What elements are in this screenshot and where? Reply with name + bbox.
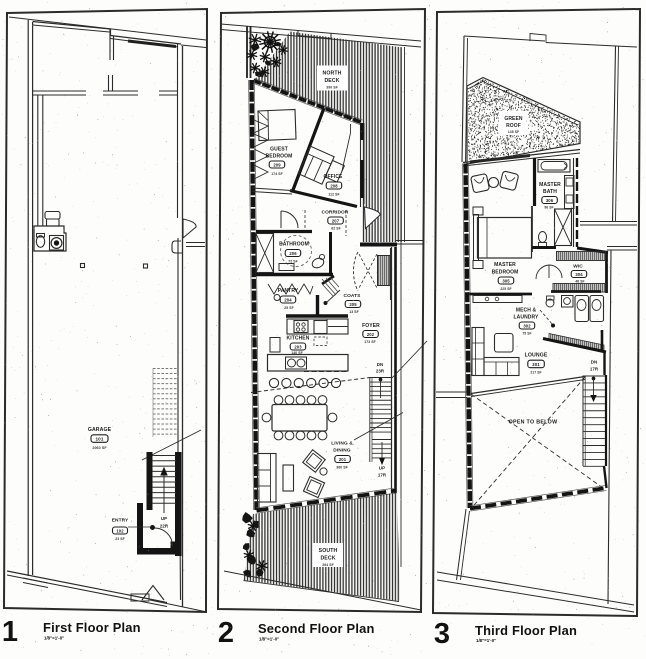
svg-text:BATHROOM: BATHROOM bbox=[279, 242, 309, 248]
svg-text:17R: 17R bbox=[590, 367, 599, 372]
svg-text:LIVING &: LIVING & bbox=[331, 441, 353, 447]
svg-text:GUEST: GUEST bbox=[270, 147, 288, 153]
svg-text:204: 204 bbox=[284, 297, 292, 302]
svg-text:174 SF: 174 SF bbox=[271, 172, 283, 176]
svg-text:207: 207 bbox=[332, 218, 340, 223]
svg-text:101: 101 bbox=[96, 436, 104, 441]
svg-text:23R: 23R bbox=[376, 369, 385, 374]
svg-text:217 SF: 217 SF bbox=[530, 371, 541, 375]
svg-text:Third Floor Plan: Third Floor Plan bbox=[475, 623, 577, 638]
svg-text:OFFICE: OFFICE bbox=[324, 174, 343, 180]
svg-text:First Floor Plan: First Floor Plan bbox=[43, 620, 141, 635]
svg-text:48 SF: 48 SF bbox=[575, 280, 584, 284]
svg-text:SOUTH: SOUTH bbox=[319, 548, 338, 554]
svg-text:306: 306 bbox=[546, 198, 554, 203]
svg-text:72 SF: 72 SF bbox=[288, 260, 298, 264]
svg-text:ENTRY: ENTRY bbox=[112, 518, 129, 524]
svg-text:BEDROOM: BEDROOM bbox=[492, 270, 519, 276]
svg-text:GREEN: GREEN bbox=[504, 116, 523, 122]
svg-text:305: 305 bbox=[502, 278, 510, 283]
svg-text:75 SF: 75 SF bbox=[522, 332, 531, 336]
svg-text:225 SF: 225 SF bbox=[500, 287, 511, 291]
svg-text:UP: UP bbox=[379, 466, 385, 471]
svg-text:23 SF: 23 SF bbox=[115, 537, 125, 541]
svg-text:MASTER: MASTER bbox=[494, 262, 516, 268]
svg-text:KITCHEN: KITCHEN bbox=[287, 336, 310, 342]
svg-text:WIC: WIC bbox=[573, 264, 583, 270]
svg-text:NORTH: NORTH bbox=[323, 71, 342, 77]
svg-text:DN: DN bbox=[591, 360, 598, 365]
svg-text:208: 208 bbox=[330, 183, 338, 188]
svg-text:UP: UP bbox=[161, 516, 167, 521]
svg-text:205: 205 bbox=[349, 302, 357, 307]
svg-text:209: 209 bbox=[273, 162, 281, 167]
svg-text:DINING: DINING bbox=[333, 448, 351, 454]
svg-text:BATH: BATH bbox=[543, 189, 557, 195]
svg-text:2: 2 bbox=[218, 617, 234, 649]
svg-text:13 SF: 13 SF bbox=[349, 310, 359, 314]
svg-text:COATS: COATS bbox=[344, 293, 362, 299]
svg-text:LAUNDRY: LAUNDRY bbox=[514, 315, 540, 321]
svg-text:1/8"=1'-0": 1/8"=1'-0" bbox=[44, 636, 64, 641]
svg-text:MECH &: MECH & bbox=[516, 308, 537, 314]
svg-text:Second Floor Plan: Second Floor Plan bbox=[258, 621, 375, 636]
svg-text:LOUNGE: LOUNGE bbox=[525, 353, 548, 359]
svg-text:OPEN TO BELOW: OPEN TO BELOW bbox=[509, 420, 558, 426]
svg-text:1/8"=1'-0": 1/8"=1'-0" bbox=[476, 638, 496, 643]
svg-text:301: 301 bbox=[532, 362, 540, 367]
svg-text:22R: 22R bbox=[160, 524, 169, 529]
svg-text:264 SF: 264 SF bbox=[322, 563, 334, 567]
svg-text:DECK: DECK bbox=[324, 78, 339, 84]
svg-text:360 SF: 360 SF bbox=[336, 466, 348, 470]
svg-text:GARAGE: GARAGE bbox=[88, 427, 112, 433]
svg-text:1/8"=1'-0": 1/8"=1'-0" bbox=[259, 637, 279, 642]
svg-text:302: 302 bbox=[523, 323, 531, 328]
svg-text:173 SF: 173 SF bbox=[364, 340, 376, 344]
svg-text:201: 201 bbox=[339, 457, 347, 462]
svg-text:304: 304 bbox=[575, 272, 583, 277]
svg-text:FOYER: FOYER bbox=[362, 323, 380, 329]
svg-text:202: 202 bbox=[367, 332, 375, 337]
svg-text:390 SF: 390 SF bbox=[326, 86, 338, 90]
svg-text:112 SF: 112 SF bbox=[328, 193, 339, 197]
svg-text:CORRIDOR: CORRIDOR bbox=[322, 210, 349, 216]
svg-text:206: 206 bbox=[289, 251, 297, 256]
svg-text:17R: 17R bbox=[378, 473, 387, 478]
svg-text:MASTER: MASTER bbox=[539, 182, 561, 188]
svg-text:203: 203 bbox=[294, 344, 302, 349]
svg-text:102: 102 bbox=[116, 528, 124, 533]
svg-text:PANTRY: PANTRY bbox=[278, 288, 299, 294]
svg-text:96 SF: 96 SF bbox=[544, 206, 553, 210]
svg-text:62 SF: 62 SF bbox=[331, 227, 341, 231]
svg-text:BEDROOM: BEDROOM bbox=[266, 154, 293, 160]
svg-text:DN: DN bbox=[377, 362, 384, 367]
svg-text:2060 SF: 2060 SF bbox=[92, 446, 107, 450]
svg-text:3: 3 bbox=[434, 618, 450, 650]
svg-text:1: 1 bbox=[2, 616, 18, 648]
svg-text:DECK: DECK bbox=[320, 556, 335, 562]
svg-text:148 SF: 148 SF bbox=[508, 130, 519, 134]
svg-text:ROOF: ROOF bbox=[506, 123, 521, 129]
svg-text:25 SF: 25 SF bbox=[284, 306, 294, 310]
